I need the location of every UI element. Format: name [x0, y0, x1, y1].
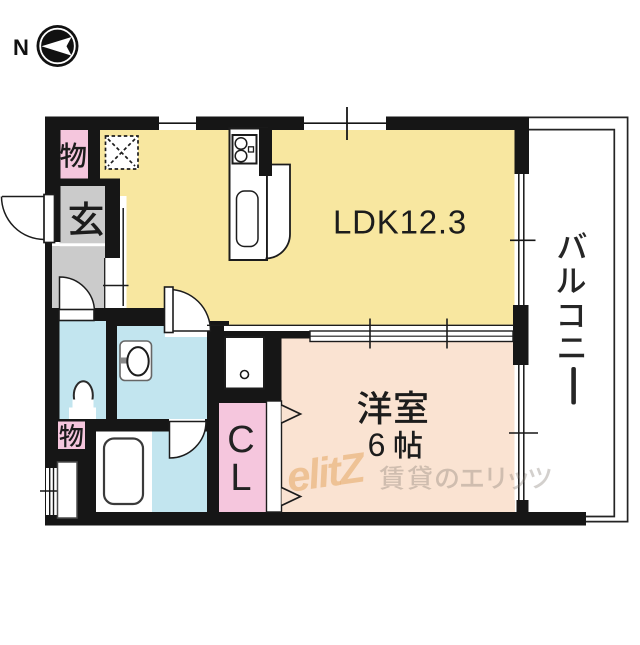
svg-text:LDK12.3: LDK12.3	[333, 204, 467, 241]
svg-text:L: L	[230, 457, 251, 499]
svg-text:C: C	[227, 419, 254, 461]
svg-text:6: 6	[368, 427, 386, 463]
svg-text:N: N	[13, 35, 29, 60]
